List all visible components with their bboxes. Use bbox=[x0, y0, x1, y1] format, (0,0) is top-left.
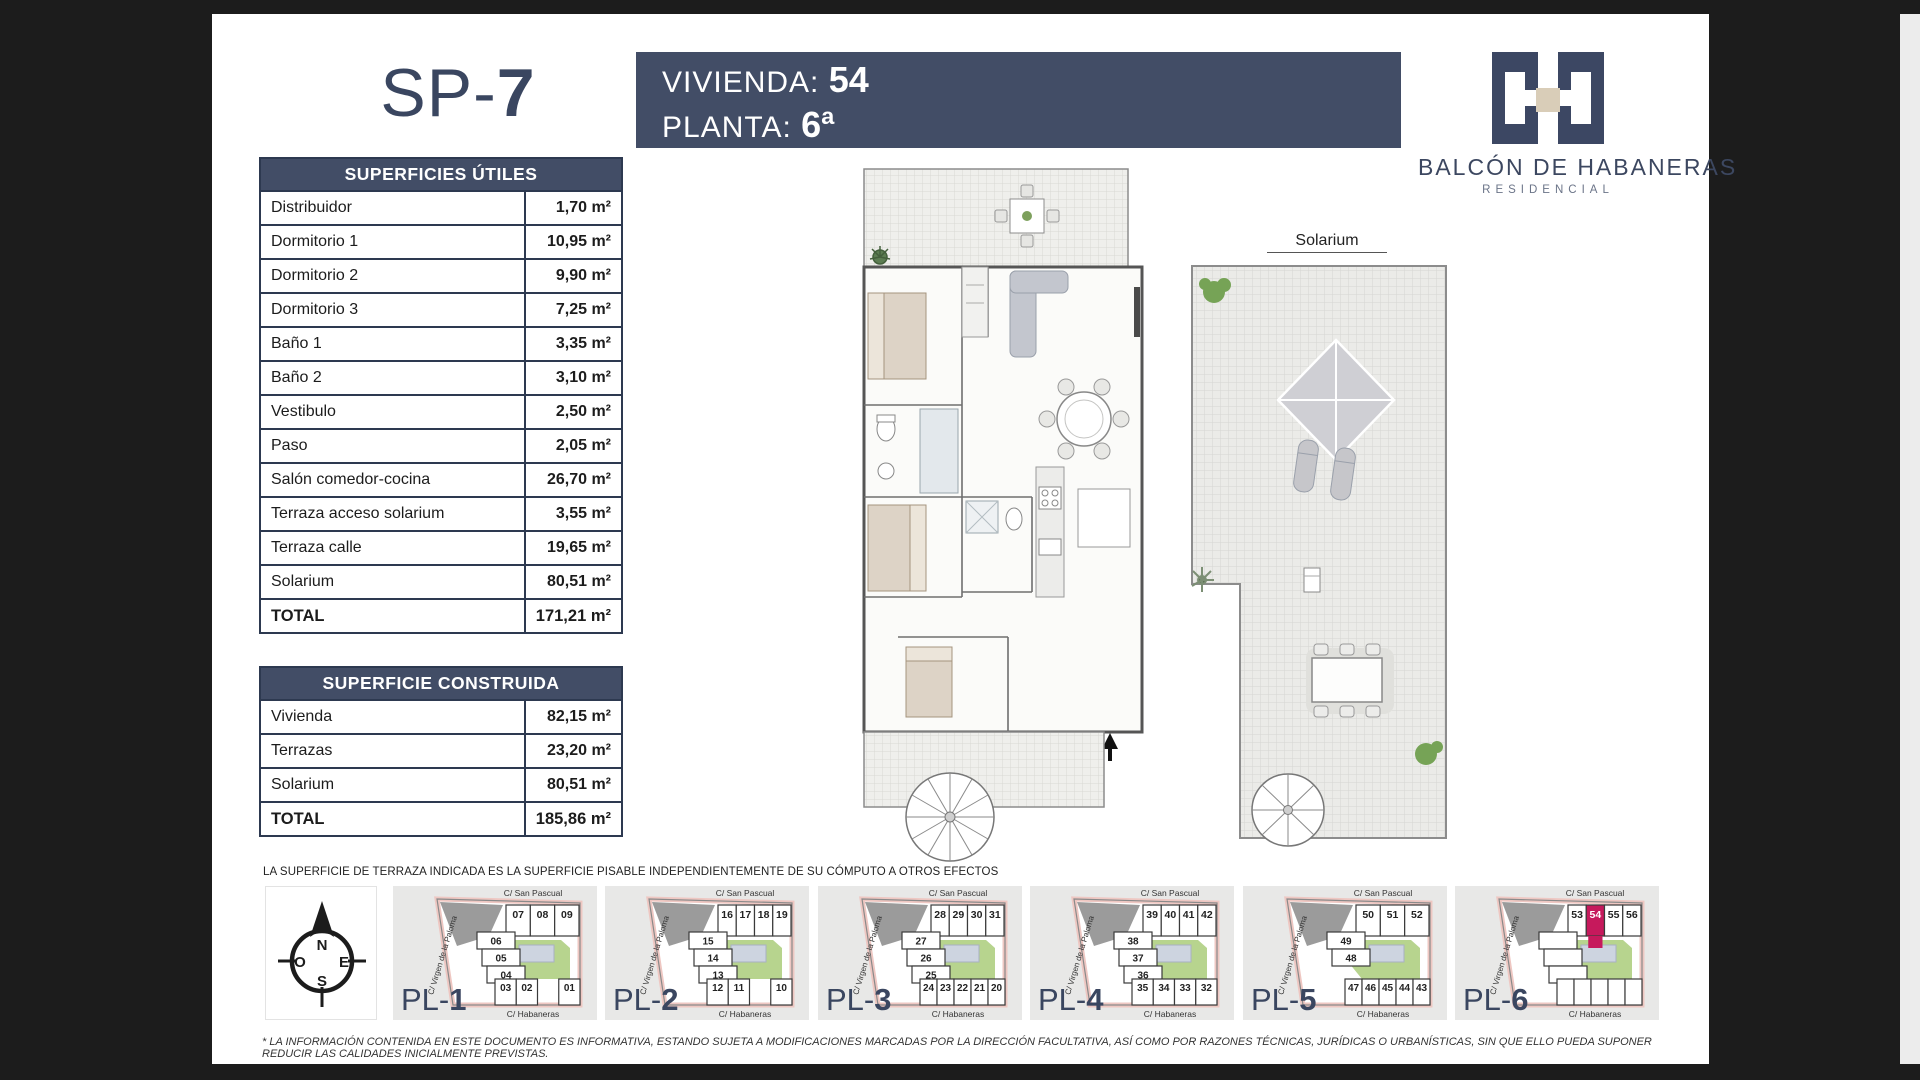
area-label: Dormitorio 2 bbox=[260, 259, 525, 293]
svg-text:C/ San Pascual: C/ San Pascual bbox=[1141, 888, 1200, 898]
brand-logo-icon bbox=[1489, 52, 1607, 144]
svg-text:24: 24 bbox=[923, 983, 935, 994]
area-label: TOTAL bbox=[260, 802, 525, 836]
area-label: Paso bbox=[260, 429, 525, 463]
area-row: Distribuidor1,70 m² bbox=[260, 191, 622, 225]
svg-text:07: 07 bbox=[512, 909, 524, 921]
built-areas-table: SUPERFICIE CONSTRUIDA Vivienda82,15 m²Te… bbox=[259, 666, 623, 837]
unit-info-banner: VIVIENDA: 54 PLANTA: 6ª bbox=[636, 52, 1401, 148]
svg-text:10: 10 bbox=[776, 983, 788, 994]
svg-text:14: 14 bbox=[707, 954, 719, 965]
area-row: TOTAL185,86 m² bbox=[260, 802, 622, 836]
svg-text:C/ San Pascual: C/ San Pascual bbox=[504, 888, 563, 898]
svg-text:52: 52 bbox=[1411, 909, 1423, 921]
page-title: SP-7 bbox=[328, 54, 588, 132]
svg-text:35: 35 bbox=[1137, 983, 1149, 994]
area-label: Distribuidor bbox=[260, 191, 525, 225]
svg-text:47: 47 bbox=[1348, 983, 1360, 994]
brand-name: BALCÓN DE HABANERAS bbox=[1418, 154, 1678, 181]
svg-text:33: 33 bbox=[1180, 983, 1192, 994]
svg-text:46: 46 bbox=[1365, 983, 1377, 994]
svg-text:45: 45 bbox=[1382, 983, 1394, 994]
svg-text:39: 39 bbox=[1146, 909, 1158, 921]
area-label: Terraza calle bbox=[260, 531, 525, 565]
compass-n: N bbox=[317, 937, 328, 954]
planta-value: 6ª bbox=[801, 104, 834, 145]
svg-text:12: 12 bbox=[712, 983, 724, 994]
area-row: Vivienda82,15 m² bbox=[260, 700, 622, 734]
compass-card: N O E S bbox=[265, 886, 377, 1020]
area-value: 3,55 m² bbox=[525, 497, 622, 531]
svg-text:28: 28 bbox=[934, 909, 946, 921]
floor-plan-label: PL-1 bbox=[401, 982, 467, 1018]
vivienda-line: VIVIENDA: 54 bbox=[662, 59, 1401, 104]
svg-text:C/ Habaneras: C/ Habaneras bbox=[1144, 1009, 1196, 1019]
brochure-page-background: SP-7 VIVIENDA: 54 PLANTA: 6ª bbox=[0, 0, 1920, 1080]
svg-text:19: 19 bbox=[776, 909, 788, 921]
svg-text:16: 16 bbox=[721, 909, 733, 921]
area-row: Terraza calle19,65 m² bbox=[260, 531, 622, 565]
svg-text:43: 43 bbox=[1416, 983, 1428, 994]
area-label: Dormitorio 3 bbox=[260, 293, 525, 327]
area-row: TOTAL171,21 m² bbox=[260, 599, 622, 633]
area-value: 2,50 m² bbox=[525, 395, 622, 429]
compass-e: E bbox=[339, 954, 349, 971]
area-value: 82,15 m² bbox=[525, 700, 622, 734]
svg-text:27: 27 bbox=[915, 937, 927, 948]
svg-text:03: 03 bbox=[500, 983, 512, 994]
area-value: 1,70 m² bbox=[525, 191, 622, 225]
floor-plan-card-PL-1: 070809060504030201C/ San PascualC/ Haban… bbox=[393, 886, 597, 1020]
planta-line: PLANTA: 6ª bbox=[662, 104, 1401, 149]
floor-plan-label: PL-4 bbox=[1038, 982, 1104, 1018]
area-value: 3,35 m² bbox=[525, 327, 622, 361]
svg-text:56: 56 bbox=[1626, 909, 1638, 921]
area-label: Vestibulo bbox=[260, 395, 525, 429]
area-row: Dormitorio 37,25 m² bbox=[260, 293, 622, 327]
area-label: Solarium bbox=[260, 768, 525, 802]
area-row: Dormitorio 110,95 m² bbox=[260, 225, 622, 259]
area-row: Terrazas23,20 m² bbox=[260, 734, 622, 768]
area-row: Salón comedor-cocina26,70 m² bbox=[260, 463, 622, 497]
area-label: TOTAL bbox=[260, 599, 525, 633]
area-value: 26,70 m² bbox=[525, 463, 622, 497]
area-value: 80,51 m² bbox=[525, 565, 622, 599]
svg-text:32: 32 bbox=[1201, 983, 1213, 994]
svg-text:C/ Habaneras: C/ Habaneras bbox=[1569, 1009, 1621, 1019]
area-value: 171,21 m² bbox=[525, 599, 622, 633]
svg-text:51: 51 bbox=[1387, 909, 1399, 921]
area-label: Salón comedor-cocina bbox=[260, 463, 525, 497]
area-label: Baño 2 bbox=[260, 361, 525, 395]
floor-plan-label: PL-2 bbox=[613, 982, 679, 1018]
brand-subtitle: RESIDENCIAL bbox=[1418, 184, 1678, 196]
svg-text:C/ Habaneras: C/ Habaneras bbox=[1357, 1009, 1409, 1019]
svg-text:30: 30 bbox=[971, 909, 983, 921]
floor-plan-card-PL-4: 3940414238373635343332C/ San PascualC/ H… bbox=[1030, 886, 1234, 1020]
svg-text:08: 08 bbox=[537, 909, 549, 921]
area-row: Paso2,05 m² bbox=[260, 429, 622, 463]
svg-text:C/ Habaneras: C/ Habaneras bbox=[932, 1009, 984, 1019]
svg-text:55: 55 bbox=[1608, 909, 1620, 921]
solarium-floorplan bbox=[1188, 262, 1459, 854]
svg-text:17: 17 bbox=[740, 909, 752, 921]
floor-plan-card-PL-2: 16171819151413121110C/ San PascualC/ Hab… bbox=[605, 886, 809, 1020]
svg-text:15: 15 bbox=[702, 937, 714, 948]
vivienda-value: 54 bbox=[829, 59, 869, 100]
built-areas-header: SUPERFICIE CONSTRUIDA bbox=[260, 667, 622, 700]
area-value: 2,05 m² bbox=[525, 429, 622, 463]
terrace-note: LA SUPERFICIE DE TERRAZA INDICADA ES LA … bbox=[263, 866, 998, 878]
svg-text:53: 53 bbox=[1571, 909, 1583, 921]
apartment-floorplan bbox=[858, 167, 1148, 864]
floor-plan-label: PL-5 bbox=[1251, 982, 1317, 1018]
area-label: Baño 1 bbox=[260, 327, 525, 361]
floor-plan-label: PL-6 bbox=[1463, 982, 1529, 1018]
compass-o: O bbox=[294, 954, 306, 971]
area-row: Baño 23,10 m² bbox=[260, 361, 622, 395]
svg-text:42: 42 bbox=[1201, 909, 1213, 921]
svg-text:11: 11 bbox=[734, 983, 745, 994]
svg-text:48: 48 bbox=[1345, 954, 1357, 965]
area-label: Terrazas bbox=[260, 734, 525, 768]
svg-text:49: 49 bbox=[1340, 937, 1352, 948]
svg-text:44: 44 bbox=[1399, 983, 1411, 994]
floor-plan-card-PL-6: 53545556C/ San PascualC/ HabanerasC/ Vir… bbox=[1455, 886, 1659, 1020]
brand-block: BALCÓN DE HABANERAS RESIDENCIAL bbox=[1418, 52, 1678, 196]
svg-text:06: 06 bbox=[490, 937, 502, 948]
svg-text:37: 37 bbox=[1132, 954, 1144, 965]
area-value: 80,51 m² bbox=[525, 768, 622, 802]
svg-text:20: 20 bbox=[991, 983, 1003, 994]
unit-code-number: 7 bbox=[497, 55, 536, 131]
area-value: 23,20 m² bbox=[525, 734, 622, 768]
unit-code-prefix: SP- bbox=[380, 55, 496, 131]
svg-text:C/ Habaneras: C/ Habaneras bbox=[507, 1009, 559, 1019]
svg-text:40: 40 bbox=[1165, 909, 1177, 921]
svg-text:50: 50 bbox=[1362, 909, 1374, 921]
compass-icon: N O E S bbox=[266, 887, 378, 1021]
planta-label: PLANTA: bbox=[662, 111, 792, 144]
area-label: Solarium bbox=[260, 565, 525, 599]
area-value: 3,10 m² bbox=[525, 361, 622, 395]
compass-s: S bbox=[317, 973, 327, 990]
area-row: Solarium80,51 m² bbox=[260, 565, 622, 599]
area-row: Vestibulo2,50 m² bbox=[260, 395, 622, 429]
area-value: 10,95 m² bbox=[525, 225, 622, 259]
svg-text:38: 38 bbox=[1127, 937, 1139, 948]
svg-text:34: 34 bbox=[1158, 983, 1170, 994]
svg-text:C/ San Pascual: C/ San Pascual bbox=[929, 888, 988, 898]
svg-text:31: 31 bbox=[989, 909, 1001, 921]
floor-plan-card-PL-5: 50515249484746454443C/ San PascualC/ Hab… bbox=[1243, 886, 1447, 1020]
area-value: 9,90 m² bbox=[525, 259, 622, 293]
legal-disclaimer: * LA INFORMACIÓN CONTENIDA EN ESTE DOCUM… bbox=[262, 1036, 1682, 1060]
svg-text:21: 21 bbox=[974, 983, 986, 994]
svg-text:22: 22 bbox=[957, 983, 969, 994]
svg-text:05: 05 bbox=[495, 954, 507, 965]
area-row: Baño 13,35 m² bbox=[260, 327, 622, 361]
area-row: Dormitorio 29,90 m² bbox=[260, 259, 622, 293]
svg-text:41: 41 bbox=[1183, 909, 1195, 921]
area-label: Terraza acceso solarium bbox=[260, 497, 525, 531]
svg-text:23: 23 bbox=[940, 983, 952, 994]
area-row: Solarium80,51 m² bbox=[260, 768, 622, 802]
svg-text:C/ Habaneras: C/ Habaneras bbox=[719, 1009, 771, 1019]
svg-text:C/ San Pascual: C/ San Pascual bbox=[716, 888, 775, 898]
svg-text:02: 02 bbox=[521, 983, 533, 994]
useful-areas-table: SUPERFICIES ÚTILES Distribuidor1,70 m²Do… bbox=[259, 157, 623, 634]
svg-text:C/ San Pascual: C/ San Pascual bbox=[1354, 888, 1413, 898]
area-value: 19,65 m² bbox=[525, 531, 622, 565]
solarium-label: Solarium bbox=[1267, 232, 1387, 253]
svg-text:54: 54 bbox=[1590, 909, 1602, 921]
svg-text:C/ San Pascual: C/ San Pascual bbox=[1566, 888, 1625, 898]
area-row: Terraza acceso solarium3,55 m² bbox=[260, 497, 622, 531]
svg-text:29: 29 bbox=[953, 909, 965, 921]
next-page-edge bbox=[1900, 14, 1920, 1064]
area-label: Dormitorio 1 bbox=[260, 225, 525, 259]
floor-plan-label: PL-3 bbox=[826, 982, 892, 1018]
floor-plan-card-PL-3: 282930312726252423222120C/ San PascualC/… bbox=[818, 886, 1022, 1020]
svg-text:01: 01 bbox=[564, 983, 576, 994]
brochure-page: SP-7 VIVIENDA: 54 PLANTA: 6ª bbox=[212, 14, 1709, 1064]
svg-text:09: 09 bbox=[561, 909, 573, 921]
area-value: 7,25 m² bbox=[525, 293, 622, 327]
svg-text:18: 18 bbox=[758, 909, 770, 921]
vivienda-label: VIVIENDA: bbox=[662, 66, 819, 99]
area-label: Vivienda bbox=[260, 700, 525, 734]
useful-areas-header: SUPERFICIES ÚTILES bbox=[260, 158, 622, 191]
area-value: 185,86 m² bbox=[525, 802, 622, 836]
svg-text:26: 26 bbox=[920, 954, 932, 965]
